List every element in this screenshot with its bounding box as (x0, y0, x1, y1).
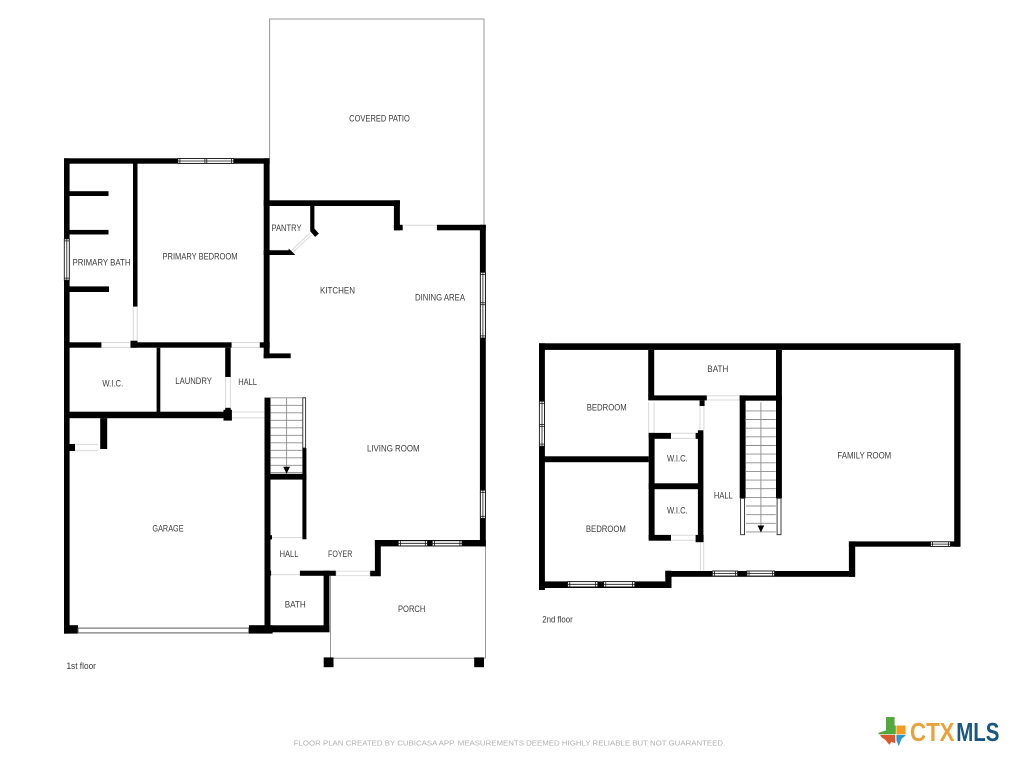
svg-text:PANTRY: PANTRY (272, 223, 302, 233)
svg-text:HALL: HALL (714, 491, 733, 501)
svg-text:BEDROOM: BEDROOM (587, 402, 627, 412)
svg-text:W.I.C.: W.I.C. (667, 453, 688, 463)
svg-text:BEDROOM: BEDROOM (586, 524, 626, 534)
svg-text:FAMILY ROOM: FAMILY ROOM (837, 451, 891, 461)
svg-text:CTX: CTX (910, 719, 955, 747)
svg-text:PRIMARY BATH: PRIMARY BATH (73, 258, 131, 268)
svg-text:BATH: BATH (707, 364, 728, 374)
svg-text:PORCH: PORCH (398, 604, 425, 614)
svg-text:GARAGE: GARAGE (152, 523, 183, 533)
svg-text:HALL: HALL (280, 549, 299, 559)
svg-text:PRIMARY BEDROOM: PRIMARY BEDROOM (163, 252, 238, 262)
svg-text:LIVING ROOM: LIVING ROOM (367, 444, 420, 454)
svg-text:HALL: HALL (238, 377, 257, 387)
svg-text:LAUNDRY: LAUNDRY (175, 376, 212, 386)
svg-text:BATH: BATH (285, 599, 306, 609)
svg-text:COVERED PATIO: COVERED PATIO (349, 113, 410, 123)
svg-text:MLS: MLS (956, 719, 999, 747)
svg-text:1st floor: 1st floor (66, 661, 96, 671)
svg-text:FLOOR PLAN CREATED BY CUBICASA: FLOOR PLAN CREATED BY CUBICASA APP. MEAS… (294, 740, 726, 747)
svg-text:W.I.C.: W.I.C. (667, 505, 688, 515)
svg-text:W.I.C.: W.I.C. (102, 378, 123, 388)
svg-text:2nd floor: 2nd floor (542, 614, 573, 624)
svg-text:DINING AREA: DINING AREA (415, 292, 465, 302)
svg-text:KITCHEN: KITCHEN (320, 285, 355, 295)
svg-text:FOYER: FOYER (328, 549, 353, 559)
